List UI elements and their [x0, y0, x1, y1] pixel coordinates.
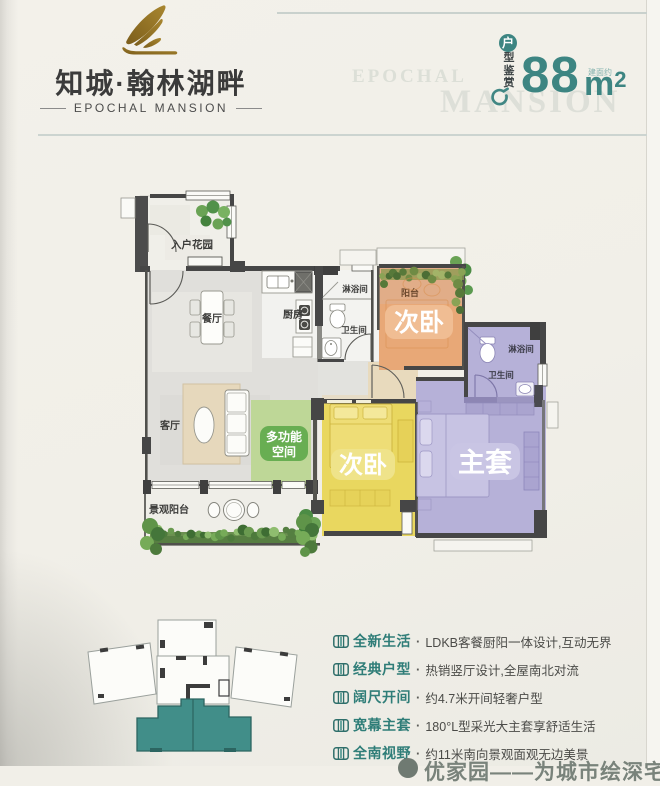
svg-text:主套: 主套 — [458, 448, 512, 478]
svg-text:淋浴间: 淋浴间 — [508, 344, 534, 354]
svg-text:次卧: 次卧 — [394, 309, 444, 337]
svg-text:次卧: 次卧 — [339, 452, 387, 479]
svg-text:卫生间: 卫生间 — [488, 370, 514, 380]
svg-text:客厅: 客厅 — [159, 419, 180, 432]
svg-text:空间: 空间 — [272, 444, 296, 459]
svg-text:阳台: 阳台 — [401, 287, 419, 298]
svg-text:餐厅: 餐厅 — [201, 312, 222, 325]
svg-text:景观阳台: 景观阳台 — [149, 503, 189, 516]
svg-text:卫生间: 卫生间 — [341, 325, 367, 335]
svg-text:厨房: 厨房 — [283, 308, 303, 321]
svg-text:多功能: 多功能 — [266, 429, 302, 444]
svg-text:入户花园: 入户花园 — [171, 238, 213, 251]
svg-text:淋浴间: 淋浴间 — [342, 284, 368, 294]
